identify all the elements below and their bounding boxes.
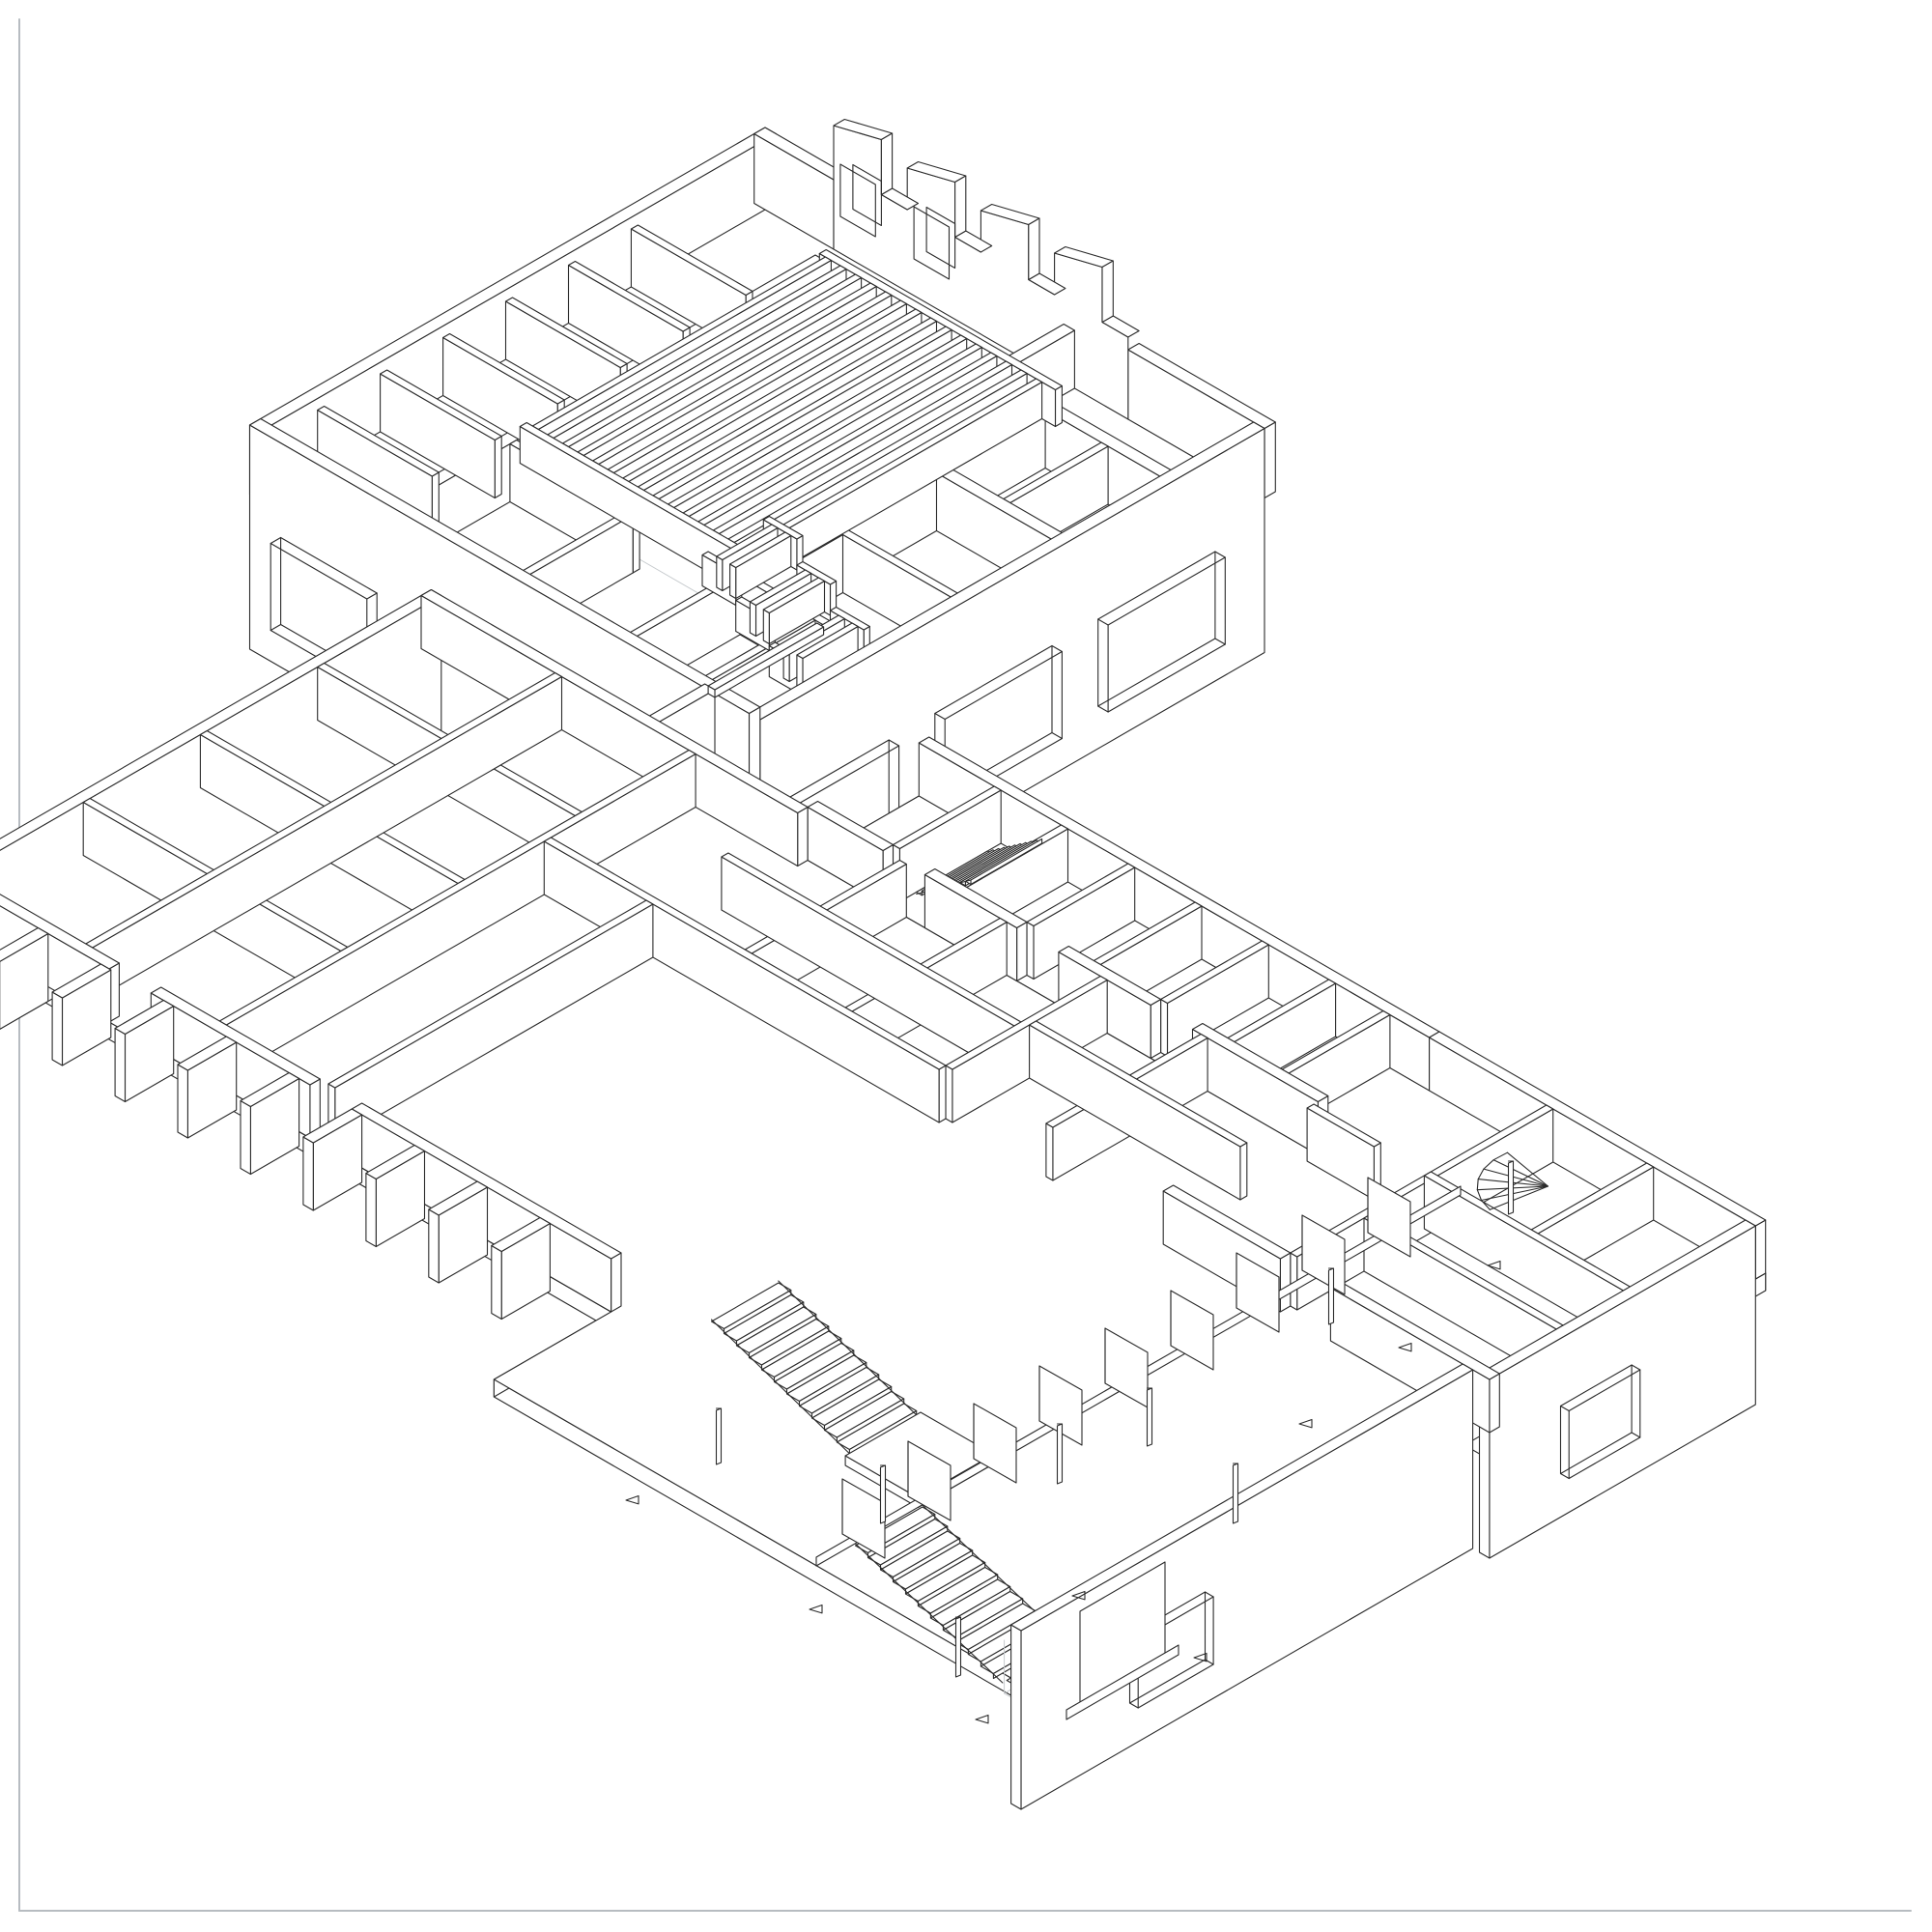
drawing-page <box>0 0 1932 1932</box>
axonometric-drawing <box>0 0 1932 1932</box>
